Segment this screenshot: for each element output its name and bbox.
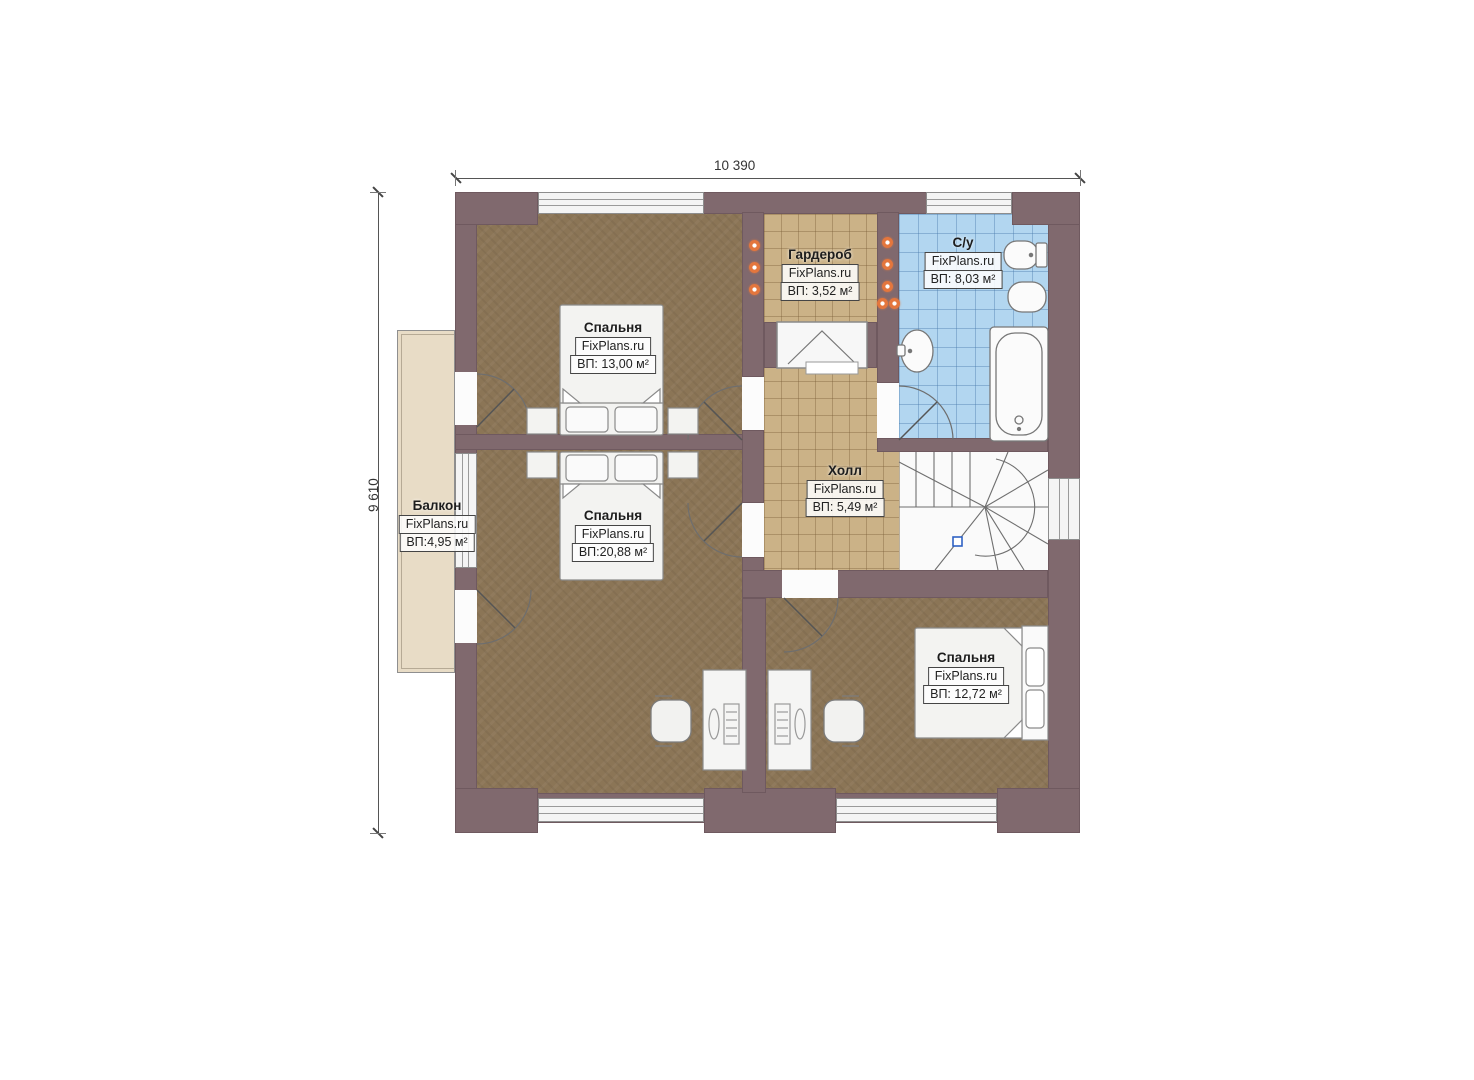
toilet-icon	[1004, 241, 1047, 269]
bidet-icon	[1008, 282, 1046, 312]
brand-badge: FixPlans.ru	[925, 252, 1002, 271]
bathtub-icon	[990, 327, 1048, 441]
room-label-hall: Холл FixPlans.ru ВП: 5,49 м²	[806, 463, 885, 517]
desk	[768, 670, 811, 770]
area-badge: ВП:4,95 м²	[399, 533, 474, 552]
staircase	[899, 452, 1048, 570]
brand-badge: FixPlans.ru	[928, 667, 1005, 686]
area-badge: ВП: 13,00 м²	[570, 355, 656, 374]
stair-direction-marker	[953, 537, 962, 546]
nightstand	[668, 452, 698, 478]
nightstand	[668, 408, 698, 434]
floor-plan-page: 10 390 9 610	[0, 0, 1474, 1080]
sink-icon	[897, 330, 933, 372]
nightstand	[527, 408, 557, 434]
light-icon	[882, 281, 893, 292]
room-name: С/у	[952, 235, 973, 250]
wardrobe-door	[777, 322, 867, 374]
light-icon	[882, 259, 893, 270]
area-badge: ВП:20,88 м²	[572, 543, 654, 562]
area-badge: ВП: 5,49 м²	[806, 498, 885, 517]
room-name: Спальня	[937, 650, 995, 665]
room-label-balcony: Балкон FixPlans.ru ВП:4,95 м²	[399, 498, 476, 552]
chair	[651, 696, 691, 746]
plan-overlay	[0, 0, 1474, 1080]
light-icon	[749, 240, 760, 251]
area-badge: ВП: 8,03 м²	[924, 270, 1003, 289]
room-name: Балкон	[413, 498, 462, 513]
room-label-bedroom2: Спальня FixPlans.ru ВП:20,88 м²	[572, 508, 654, 562]
room-name: Гардероб	[788, 247, 852, 262]
room-name: Спальня	[584, 320, 642, 335]
brand-badge: FixPlans.ru	[575, 337, 652, 356]
room-label-bathroom: С/у FixPlans.ru ВП: 8,03 м²	[924, 235, 1003, 289]
area-badge: ВП: 3,52 м²	[781, 282, 860, 301]
light-icon	[749, 262, 760, 273]
desk	[703, 670, 746, 770]
light-icon	[882, 237, 893, 248]
light-icon	[877, 298, 888, 309]
light-icon	[889, 298, 900, 309]
brand-badge: FixPlans.ru	[575, 525, 652, 544]
room-label-wardrobe: Гардероб FixPlans.ru ВП: 3,52 м²	[781, 247, 860, 301]
light-icon	[749, 284, 760, 295]
brand-badge: FixPlans.ru	[807, 480, 884, 499]
brand-badge: FixPlans.ru	[399, 515, 476, 534]
nightstand	[527, 452, 557, 478]
brand-badge: FixPlans.ru	[782, 264, 859, 283]
room-label-bedroom1: Спальня FixPlans.ru ВП: 13,00 м²	[570, 320, 656, 374]
area-badge: ВП: 12,72 м²	[923, 685, 1009, 704]
room-name: Холл	[828, 463, 862, 478]
chair	[824, 696, 864, 746]
room-name: Спальня	[584, 508, 642, 523]
room-label-bedroom3: Спальня FixPlans.ru ВП: 12,72 м²	[923, 650, 1009, 704]
